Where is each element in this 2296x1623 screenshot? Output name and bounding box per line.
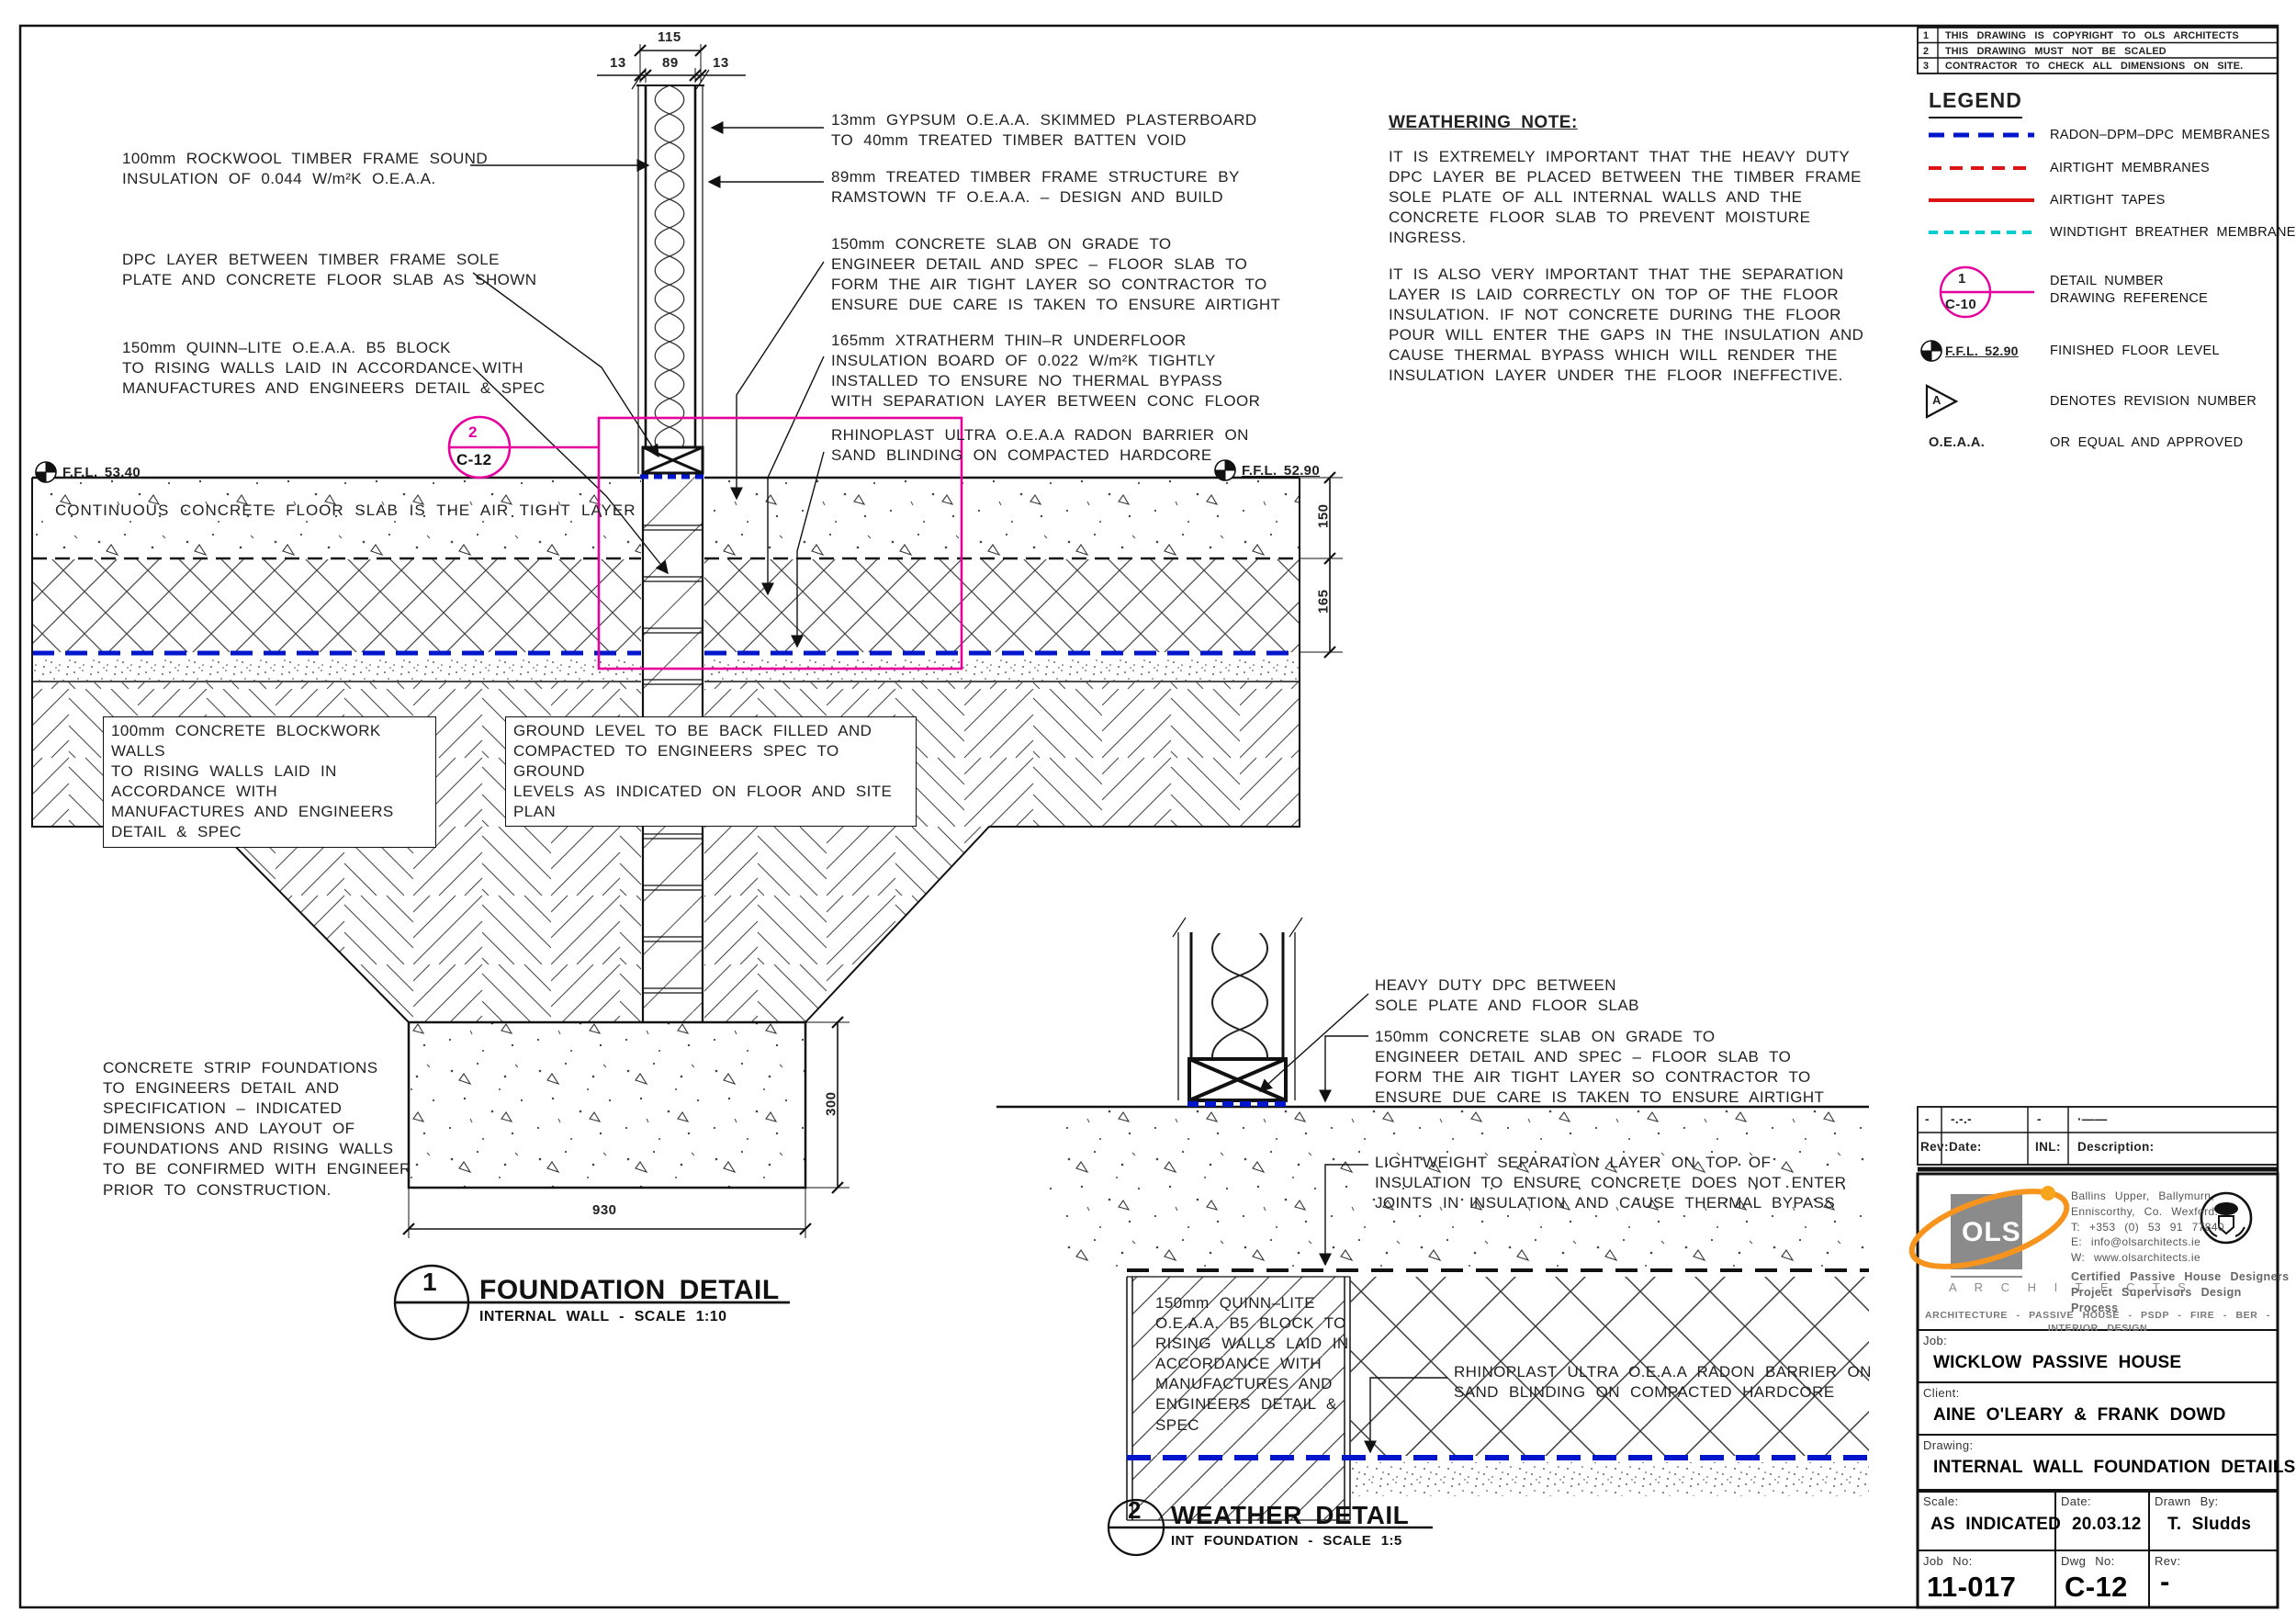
date-label: Date: bbox=[2061, 1494, 2091, 1510]
label-d2-quinn-lite-block: 150mm QUINN–LITE O.E.A.A. B5 BLOCK TO RI… bbox=[1155, 1293, 1349, 1436]
weathering-note-para2: IT IS ALSO VERY IMPORTANT THAT THE SEPAR… bbox=[1389, 265, 1863, 387]
dim-115: 115 bbox=[658, 28, 681, 47]
legend-oeaa-abbr: O.E.A.A. bbox=[1929, 434, 1985, 452]
detail2-title: WEATHER DETAIL bbox=[1171, 1499, 1409, 1532]
legend-detail-label: DETAIL NUMBER DRAWING REFERENCE bbox=[2050, 273, 2208, 308]
dim-165-insulation: 165 bbox=[1315, 589, 1334, 614]
drawing-value: INTERNAL WALL FOUNDATION DETAILS bbox=[1933, 1457, 2296, 1480]
detail-marker-ref: C-12 bbox=[456, 450, 491, 470]
detail-marker-number: 2 bbox=[468, 423, 478, 443]
legend-airtight-tapes-label: AIRTIGHT TAPES bbox=[2050, 192, 2166, 209]
weathering-note-title: WEATHERING NOTE: bbox=[1389, 112, 1578, 135]
job-no-label: Job No: bbox=[1923, 1554, 1973, 1570]
job-value: WICKLOW PASSIVE HOUSE bbox=[1933, 1352, 2181, 1375]
rev-header-date: Date: bbox=[1949, 1139, 1982, 1155]
legend-oeaa-label: OR EQUAL AND APPROVED bbox=[2050, 434, 2243, 452]
scale-label: Scale: bbox=[1923, 1494, 1959, 1510]
legend-revision-label: DENOTES REVISION NUMBER bbox=[2050, 393, 2257, 411]
legend-title: LEGEND bbox=[1929, 87, 2022, 118]
legend-ffl-text: F.F.L. 52.90 bbox=[1945, 343, 2019, 359]
legend-detail-ref: C-10 bbox=[1945, 296, 1976, 314]
date-value: 20.03.12 bbox=[2072, 1514, 2142, 1537]
rev-cell-4: ·—— bbox=[2077, 1111, 2108, 1128]
callout-concrete-slab: 150mm CONCRETE SLAB ON GRADE TO ENGINEER… bbox=[831, 234, 1280, 315]
label-ground-level: GROUND LEVEL TO BE BACK FILLED AND COMPA… bbox=[505, 716, 917, 827]
callout-timber-frame: 89mm TREATED TIMBER FRAME STRUCTURE BY R… bbox=[831, 167, 1240, 208]
dim-89: 89 bbox=[662, 54, 679, 73]
detail1-title: FOUNDATION DETAIL bbox=[479, 1272, 780, 1308]
rev-cell-3: - bbox=[2037, 1111, 2042, 1128]
note-3-text: CONTRACTOR TO CHECK ALL DIMENSIONS ON SI… bbox=[1945, 60, 2243, 73]
note-3-number: 3 bbox=[1923, 60, 1929, 73]
ffl-left-value: F.F.L. 53.40 bbox=[62, 464, 141, 482]
ffl-right-value: F.F.L. 52.90 bbox=[1242, 462, 1320, 480]
job-label: Job: bbox=[1923, 1334, 1947, 1349]
client-value: AINE O'LEARY & FRANK DOWD bbox=[1933, 1404, 2226, 1427]
rev-header-inl: INL: bbox=[2035, 1139, 2061, 1155]
job-no-value: 11-017 bbox=[1927, 1569, 2016, 1606]
callout-xtratherm-insulation: 165mm XTRATHERM THIN–R UNDERFLOOR INSULA… bbox=[831, 331, 1260, 411]
detail1-number: 1 bbox=[422, 1266, 437, 1299]
legend-windtight-label: WINDTIGHT BREATHER MEMBRANE bbox=[2050, 224, 2296, 242]
label-continuous-slab: CONTINUOUS CONCRETE FLOOR SLAB IS THE AI… bbox=[55, 501, 636, 521]
callout-rockwool-insulation: 100mm ROCKWOOL TIMBER FRAME SOUND INSULA… bbox=[122, 149, 488, 189]
note-1-number: 1 bbox=[1923, 29, 1929, 42]
callout-quinn-lite-block: 150mm QUINN–LITE O.E.A.A. B5 BLOCK TO RI… bbox=[122, 338, 546, 399]
client-label: Client: bbox=[1923, 1386, 1960, 1402]
callout-d2-concrete-slab: 150mm CONCRETE SLAB ON GRADE TO ENGINEER… bbox=[1375, 1027, 1824, 1108]
drawn-by-value: T. Sludds bbox=[2167, 1514, 2251, 1537]
detail1-subtitle: INTERNAL WALL - SCALE 1:10 bbox=[479, 1308, 726, 1327]
services-strip: ARCHITECTURE - PASSIVE HOUSE - PSDP - FI… bbox=[1918, 1310, 2278, 1335]
rev-cell-1: - bbox=[1925, 1111, 1930, 1128]
dwg-no-value: C-12 bbox=[2065, 1569, 2128, 1606]
detail2-number: 2 bbox=[1128, 1495, 1142, 1527]
note-2-text: THIS DRAWING MUST NOT BE SCALED bbox=[1945, 45, 2167, 58]
label-blockwork-walls: 100mm CONCRETE BLOCKWORK WALLS TO RISING… bbox=[103, 716, 436, 848]
label-strip-foundations: CONCRETE STRIP FOUNDATIONS TO ENGINEERS … bbox=[103, 1058, 411, 1200]
rev-header-description: Description: bbox=[2077, 1139, 2155, 1155]
callout-d2-rhinoplast: RHINOPLAST ULTRA O.E.A.A RADON BARRIER O… bbox=[1454, 1362, 1872, 1403]
dwg-no-label: Dwg No: bbox=[2061, 1554, 2115, 1570]
callout-rhinoplast-radon-barrier: RHINOPLAST ULTRA O.E.A.A RADON BARRIER O… bbox=[831, 425, 1249, 466]
weathering-note-para1: IT IS EXTREMELY IMPORTANT THAT THE HEAVY… bbox=[1389, 147, 1862, 248]
callout-lightweight-separation: LIGHTWEIGHT SEPARATION LAYER ON TOP OF I… bbox=[1375, 1153, 1846, 1213]
dim-150-slab: 150 bbox=[1315, 503, 1334, 528]
rev-value: - bbox=[2160, 1563, 2170, 1600]
dim-930-foundation: 930 bbox=[592, 1201, 617, 1220]
dim-13-right: 13 bbox=[713, 54, 729, 73]
note-1-text: THIS DRAWING IS COPYRIGHT TO OLS ARCHITE… bbox=[1945, 29, 2239, 42]
detail2-subtitle: INT FOUNDATION - SCALE 1:5 bbox=[1171, 1532, 1402, 1550]
callout-dpc-layer: DPC LAYER BETWEEN TIMBER FRAME SOLE PLAT… bbox=[122, 250, 536, 290]
rev-header-rev: Rev: bbox=[1920, 1139, 1949, 1155]
drawn-by-label: Drawn By: bbox=[2155, 1494, 2219, 1510]
drawing-label: Drawing: bbox=[1923, 1438, 1974, 1454]
legend-radon-label: RADON–DPM–DPC MEMBRANES bbox=[2050, 127, 2270, 144]
legend-airtight-membrane-label: AIRTIGHT MEMBRANES bbox=[2050, 160, 2210, 177]
legend-detail-number: 1 bbox=[1958, 270, 1966, 288]
dim-13-left: 13 bbox=[610, 54, 626, 73]
callout-heavy-duty-dpc: HEAVY DUTY DPC BETWEEN SOLE PLATE AND FL… bbox=[1375, 975, 1639, 1016]
legend-revision-letter: A bbox=[1932, 393, 1941, 409]
ols-logo-text: OLS bbox=[1962, 1214, 2021, 1250]
drawing-sheet: 100mm ROCKWOOL TIMBER FRAME SOUND INSULA… bbox=[0, 0, 2296, 1623]
callout-gypsum-plasterboard: 13mm GYPSUM O.E.A.A. SKIMMED PLASTERBOAR… bbox=[831, 110, 1257, 151]
address-block: Ballins Upper, Ballymurn, Enniscorthy, C… bbox=[2071, 1189, 2224, 1266]
legend-ffl-label: FINISHED FLOOR LEVEL bbox=[2050, 343, 2220, 360]
dim-300-foundation: 300 bbox=[823, 1091, 841, 1116]
scale-value: AS INDICATED bbox=[1930, 1514, 2061, 1537]
rev-cell-2: -.-.- bbox=[1951, 1111, 1972, 1128]
note-2-number: 2 bbox=[1923, 45, 1929, 58]
